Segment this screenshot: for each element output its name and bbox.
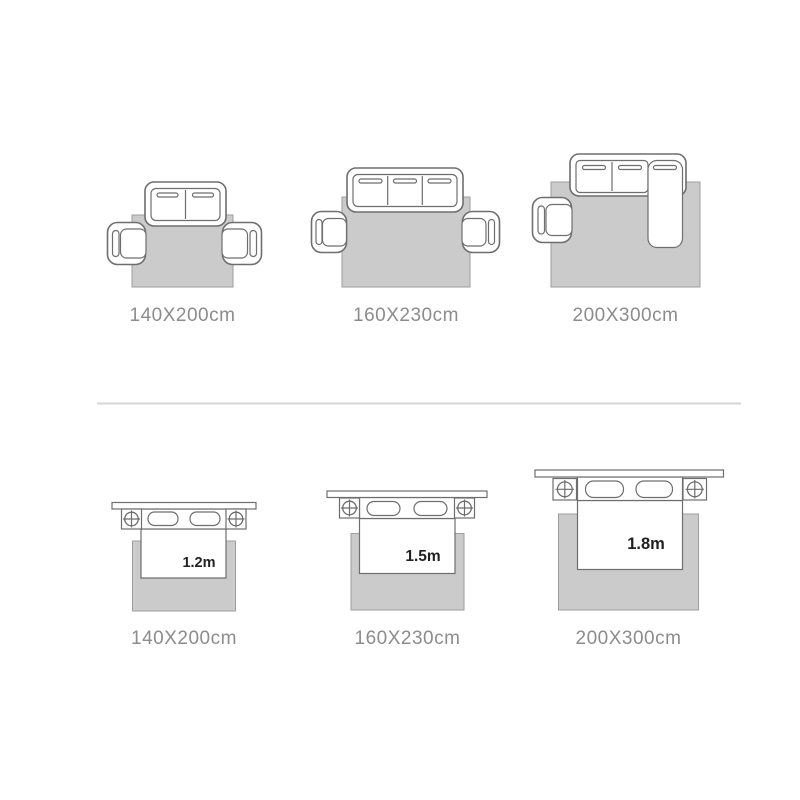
headboard [535,470,724,477]
rug-size-guide: 140X200cm 16 [0,0,800,800]
armchair-left-icon [533,198,573,243]
living-room-row: 140X200cm 16 [108,154,701,326]
bed-body [360,519,456,574]
armchair-right-icon [462,212,500,253]
rug-size-label: 160X230cm [353,305,459,326]
rug-size-label: 160X230cm [355,628,461,649]
armchair-left-icon [312,212,347,253]
armchair-left-icon [108,223,147,265]
nightstand-left-icon [340,498,360,518]
bed-width-label: 1.8m [627,535,665,553]
rug-size-label: 200X300cm [576,628,682,649]
nightstand-left-icon [122,509,142,529]
bed-width-label: 1.5m [405,548,440,565]
nightstand-right-icon [226,509,246,529]
bedroom-layout-160x230: 1.5m 160X230cm [327,491,487,649]
bedroom-layout-200x300: 1.8m 200X300cm [535,470,724,649]
bedroom-row: 1.2m 140X200cm [112,470,724,649]
bedroom-layout-140x200: 1.2m 140X200cm [112,503,256,650]
headboard [327,491,487,498]
armchair-right-icon [222,223,262,265]
pillow [636,481,673,498]
rug-size-label: 140X200cm [130,305,236,326]
living-layout-140x200: 140X200cm [108,182,262,326]
pillow [367,502,400,516]
rug-size-label: 200X300cm [573,305,679,326]
nightstand-left-icon [553,479,577,501]
pillow [148,512,178,526]
headboard [112,503,256,510]
pillow [190,512,220,526]
rug-size-label: 140X200cm [131,628,237,649]
nightstand-right-icon [455,498,475,518]
nightstand-right-icon [683,479,707,501]
pillow [414,502,447,516]
living-layout-200x300: 200X300cm [533,154,701,326]
chaise-section [648,161,683,248]
living-layout-160x230: 160X230cm [312,168,500,326]
loveseat-sofa-icon [145,182,226,226]
bed-width-label: 1.2m [182,555,215,571]
three-seat-sofa-icon [347,168,463,212]
size-guide-canvas: 140X200cm 16 [0,0,800,800]
pillow [586,481,624,498]
